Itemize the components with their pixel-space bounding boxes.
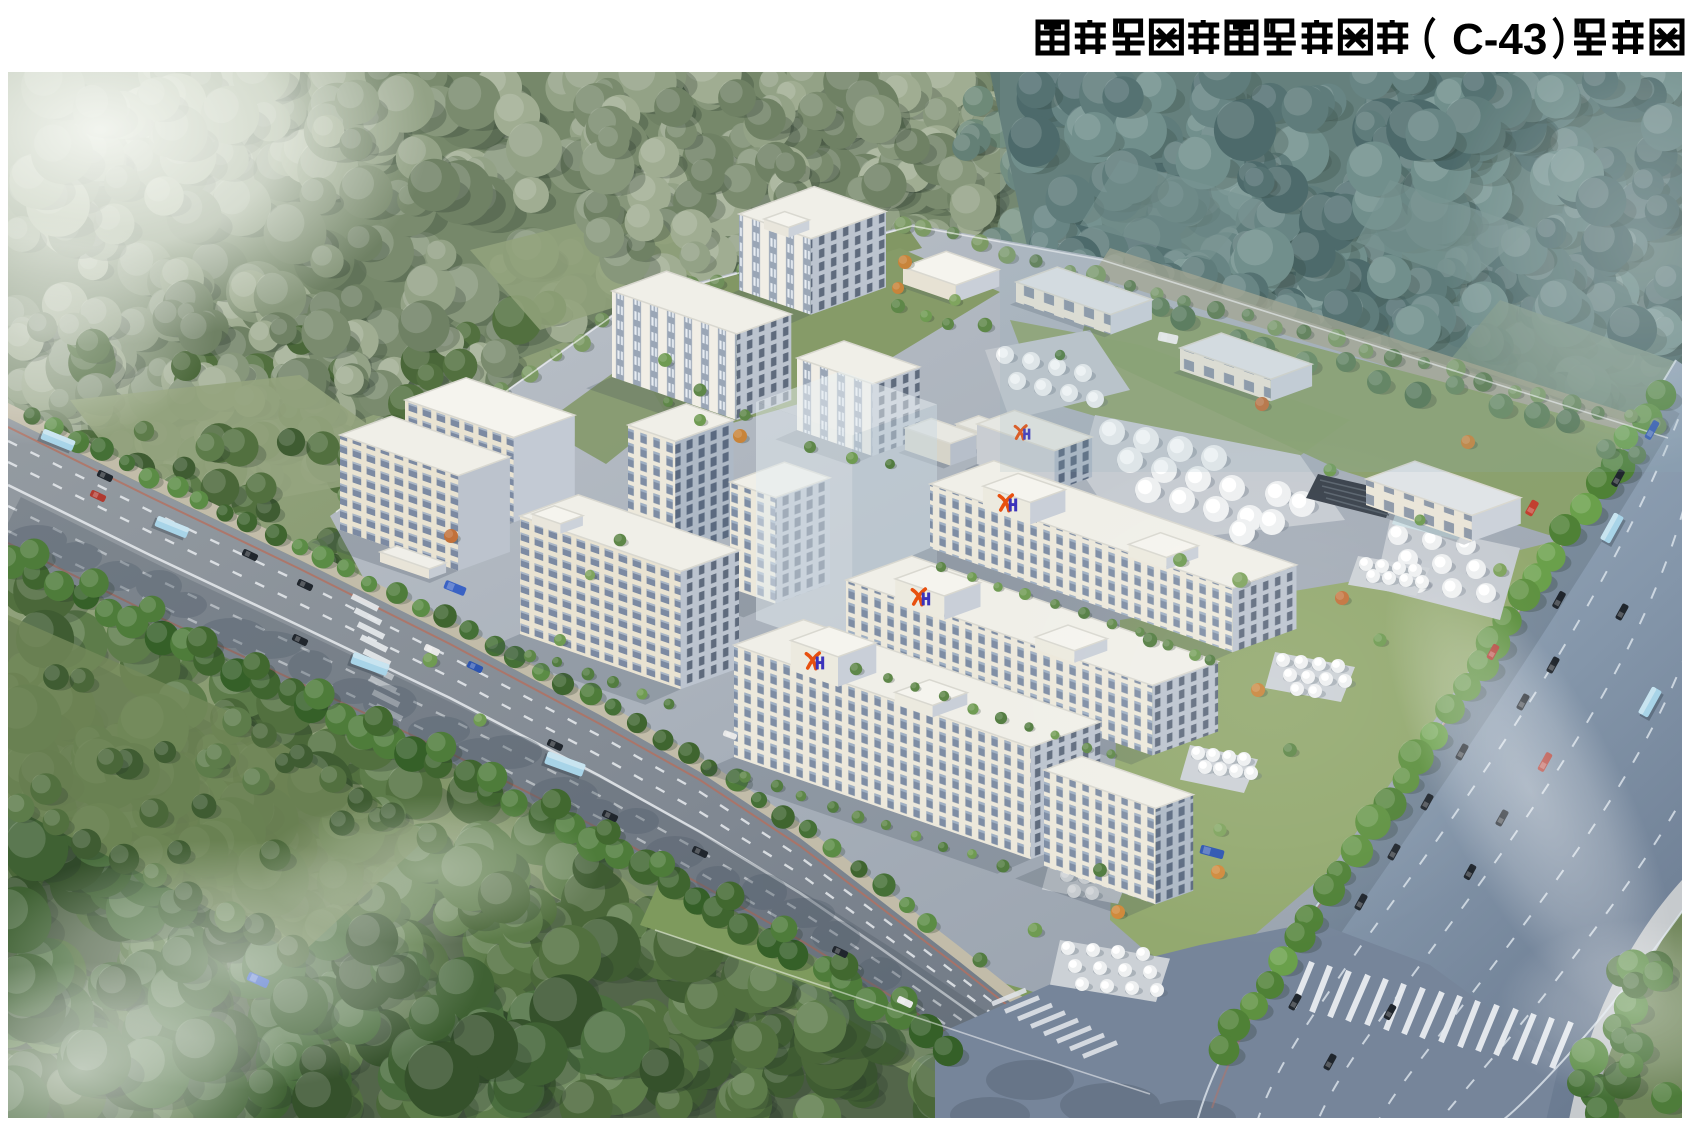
svg-text:C-43: C-43 — [1452, 15, 1547, 64]
